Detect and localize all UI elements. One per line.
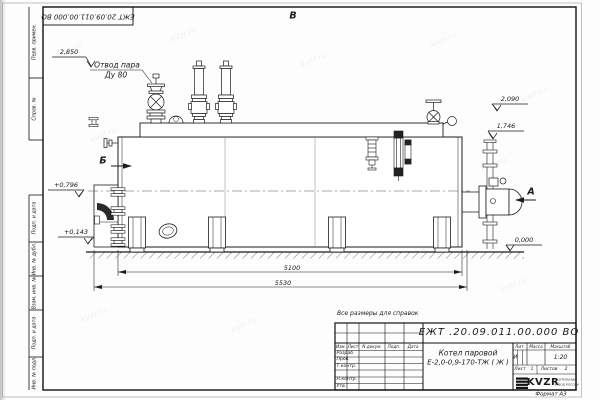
view-label-b: Б bbox=[99, 156, 106, 166]
tb-header-list: Лист bbox=[348, 345, 359, 349]
margin-sprav-no: Справ. № bbox=[34, 97, 39, 120]
margin-podp-data-2: Подп. и дата bbox=[34, 317, 39, 350]
tb-header-data: Дата bbox=[408, 345, 419, 349]
safety-valve bbox=[189, 61, 210, 123]
callout-steam-outlet-dn: Ду 80 bbox=[105, 71, 127, 79]
dimension-5100: 5100 bbox=[284, 265, 301, 272]
tb-sheet-label: Лист bbox=[514, 367, 525, 372]
dimension-5530: 5530 bbox=[275, 280, 292, 287]
tb-scale-header: Масштаб bbox=[551, 344, 571, 348]
kvzr-logo-sub1: КОТЕЛЬНЫЙ bbox=[557, 379, 577, 382]
boiler-general-view-drawing bbox=[0, 0, 600, 400]
margin-podp-data-1: Подп. и дата bbox=[34, 202, 39, 235]
drum-dome bbox=[169, 116, 183, 123]
elevation-0000: 0,000 bbox=[515, 237, 534, 244]
tb-row-nkontr: Н.контр. bbox=[337, 378, 358, 383]
elevation-0796: +0,796 bbox=[54, 182, 78, 189]
tb-header-ndokum: N докум. bbox=[362, 345, 381, 349]
tb-sheet-value: 1 bbox=[531, 367, 534, 372]
support-leg bbox=[329, 217, 346, 252]
tb-sheets-value: 2 bbox=[565, 367, 568, 372]
tb-row-razrab: Разраб. bbox=[337, 352, 355, 357]
tb-row-prov: Пров. bbox=[337, 358, 350, 363]
elevation-2850: 2,850 bbox=[60, 49, 79, 56]
tb-scale-value: 1:20 bbox=[554, 355, 567, 361]
drum-right-valve bbox=[426, 100, 457, 126]
callout-steam-outlet: Отвод пара bbox=[94, 61, 140, 69]
tb-sheets-label: Листов bbox=[541, 367, 558, 372]
support-leg bbox=[129, 217, 146, 252]
margin-inv-podl: Инв. № подл. bbox=[34, 356, 39, 389]
elevation-0143: +0,143 bbox=[64, 229, 88, 236]
boiler-artwork bbox=[48, 57, 542, 291]
view-label-v: В bbox=[289, 11, 296, 21]
safety-valve bbox=[216, 61, 237, 123]
drawing-sheet: kvzr.ru kvzr.ru kvzr.ru kvzr.ru kvzr.ru … bbox=[0, 0, 600, 400]
margin-inv-dubl: Инв. № дубл. bbox=[34, 243, 39, 276]
tb-row-tkontr: Т.контр. bbox=[337, 365, 357, 370]
product-name: Котел паровой bbox=[439, 349, 498, 357]
support-leg bbox=[434, 217, 451, 252]
tb-header-podp: Подп. bbox=[388, 345, 401, 349]
burner bbox=[462, 178, 522, 218]
doc-number: ЕЖТ .20.09.011.00.000 ВО bbox=[419, 328, 580, 338]
margin-perv-primen: Перв. примен. bbox=[34, 24, 39, 60]
support-leg bbox=[209, 217, 226, 252]
view-label-a: А bbox=[527, 187, 534, 197]
product-designation: Е-2,0-0,9-170-ТЖ ( Ж ) bbox=[427, 360, 509, 367]
tb-row-utv: Утв. bbox=[337, 385, 347, 390]
top-stamp-doc-number: ЕЖТ 20.09.011.00.000 ВО bbox=[41, 13, 134, 20]
reference-note: Все размеры для справок bbox=[337, 311, 418, 317]
feed-stub bbox=[89, 118, 98, 127]
kvzr-logo-sub2: ЗАВОД РОССИИ bbox=[554, 384, 579, 387]
steam-outlet-valve bbox=[147, 74, 165, 123]
margin-vzam-inv: Взам. инв. № bbox=[34, 277, 39, 310]
tb-lit-header: Лит. bbox=[515, 344, 525, 348]
elevation-1746: 1,746 bbox=[497, 123, 516, 130]
format-label: Формат А3 bbox=[535, 392, 566, 398]
ground-hatch bbox=[88, 252, 524, 259]
front-top-fitting bbox=[104, 139, 118, 148]
tb-mass-header: Масса bbox=[529, 344, 542, 348]
tb-header-izm: Изм. bbox=[336, 345, 346, 349]
elevation-2090: 2,090 bbox=[501, 96, 520, 103]
tb-lit-value: И bbox=[513, 355, 517, 361]
